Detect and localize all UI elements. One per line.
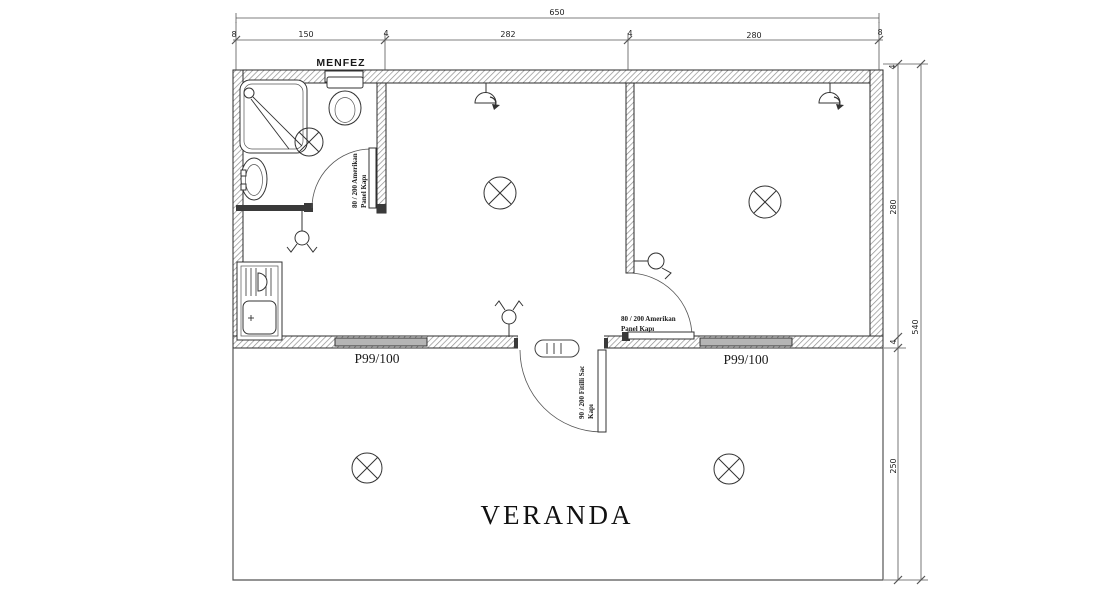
veranda-label: VERANDA — [481, 500, 634, 530]
bath-door-size-label: 80 / 200 Amerikan — [351, 153, 359, 208]
washbasin — [241, 158, 267, 200]
right-wall — [870, 70, 883, 348]
dim-top-segment: 282 — [500, 30, 515, 39]
entry-step-threshold — [535, 340, 579, 357]
shower-head-icon — [244, 88, 254, 98]
bath-door-leaf — [369, 148, 376, 208]
dim-right-segment: 4 — [888, 64, 897, 69]
entry-door-size-label: 90 / 200 Fitilli Sac — [578, 366, 586, 419]
dim-right-segment: 280 — [889, 199, 898, 214]
entry-door-leaf — [598, 350, 606, 432]
sink-basin — [243, 301, 276, 334]
floor-plan-drawing: MENFEZ P99/100 P99/100 80 / 200 Amerikan… — [0, 0, 1110, 600]
ceiling-light-icon — [484, 177, 516, 209]
dim-top-segment: 4 — [383, 29, 388, 38]
ceiling-light-icon — [714, 454, 744, 484]
bathroom-stub-wall — [377, 83, 386, 213]
wall-lamp-icon — [819, 83, 844, 110]
ceiling-light-icon — [352, 453, 382, 483]
light-switch-icon — [634, 253, 671, 279]
entry-door: 90 / 200 Fitilli Sac Kapı — [518, 335, 606, 432]
bath-door: 80 / 200 Amerikan Panel Kapı — [312, 148, 376, 208]
dim-top-segment: 8 — [877, 28, 882, 37]
dim-top-segment: 150 — [298, 30, 313, 39]
dim-top-total: 650 — [549, 8, 564, 17]
shower-tray — [240, 80, 307, 153]
wall-lamp-icon — [475, 83, 500, 110]
partition-wall — [626, 83, 634, 273]
bathroom-fixtures — [240, 77, 363, 200]
dim-right-segment: 250 — [889, 458, 898, 473]
window-left — [335, 338, 427, 346]
toilet — [327, 77, 363, 125]
window-right-label: P99/100 — [723, 352, 768, 367]
window-right — [700, 338, 792, 346]
kitchen-sink-unit — [237, 262, 282, 340]
room-door-type-label: Panel Kapı — [621, 325, 654, 333]
room-door-leaf — [628, 332, 694, 339]
light-switch-icon — [287, 211, 317, 252]
floor-plan-canvas: MENFEZ P99/100 P99/100 80 / 200 Amerikan… — [0, 0, 1110, 600]
veranda-outline — [233, 348, 883, 580]
dim-top-segment: 4 — [627, 29, 632, 38]
room-door: 80 / 200 Amerikan Panel Kapı — [621, 273, 694, 339]
dim-top-segment: 280 — [746, 31, 761, 40]
bath-door-type-label: Panel Kapı — [360, 175, 368, 208]
dim-right-segment: 4 — [889, 339, 898, 344]
room-door-size-label: 80 / 200 Amerikan — [621, 315, 676, 323]
window-left-label: P99/100 — [354, 351, 399, 366]
dim-top-segment: 8 — [231, 30, 236, 39]
light-switch-icon — [495, 301, 523, 337]
entry-door-type-label: Kapı — [587, 404, 595, 419]
ceiling-light-icon — [749, 186, 781, 218]
veranda-area: VERANDA — [233, 348, 883, 580]
bathroom-partition-wall — [236, 205, 306, 211]
dim-right-total: 540 — [911, 319, 920, 334]
menfez-label: MENFEZ — [316, 57, 365, 69]
bath-door-hinge-post — [377, 204, 386, 213]
